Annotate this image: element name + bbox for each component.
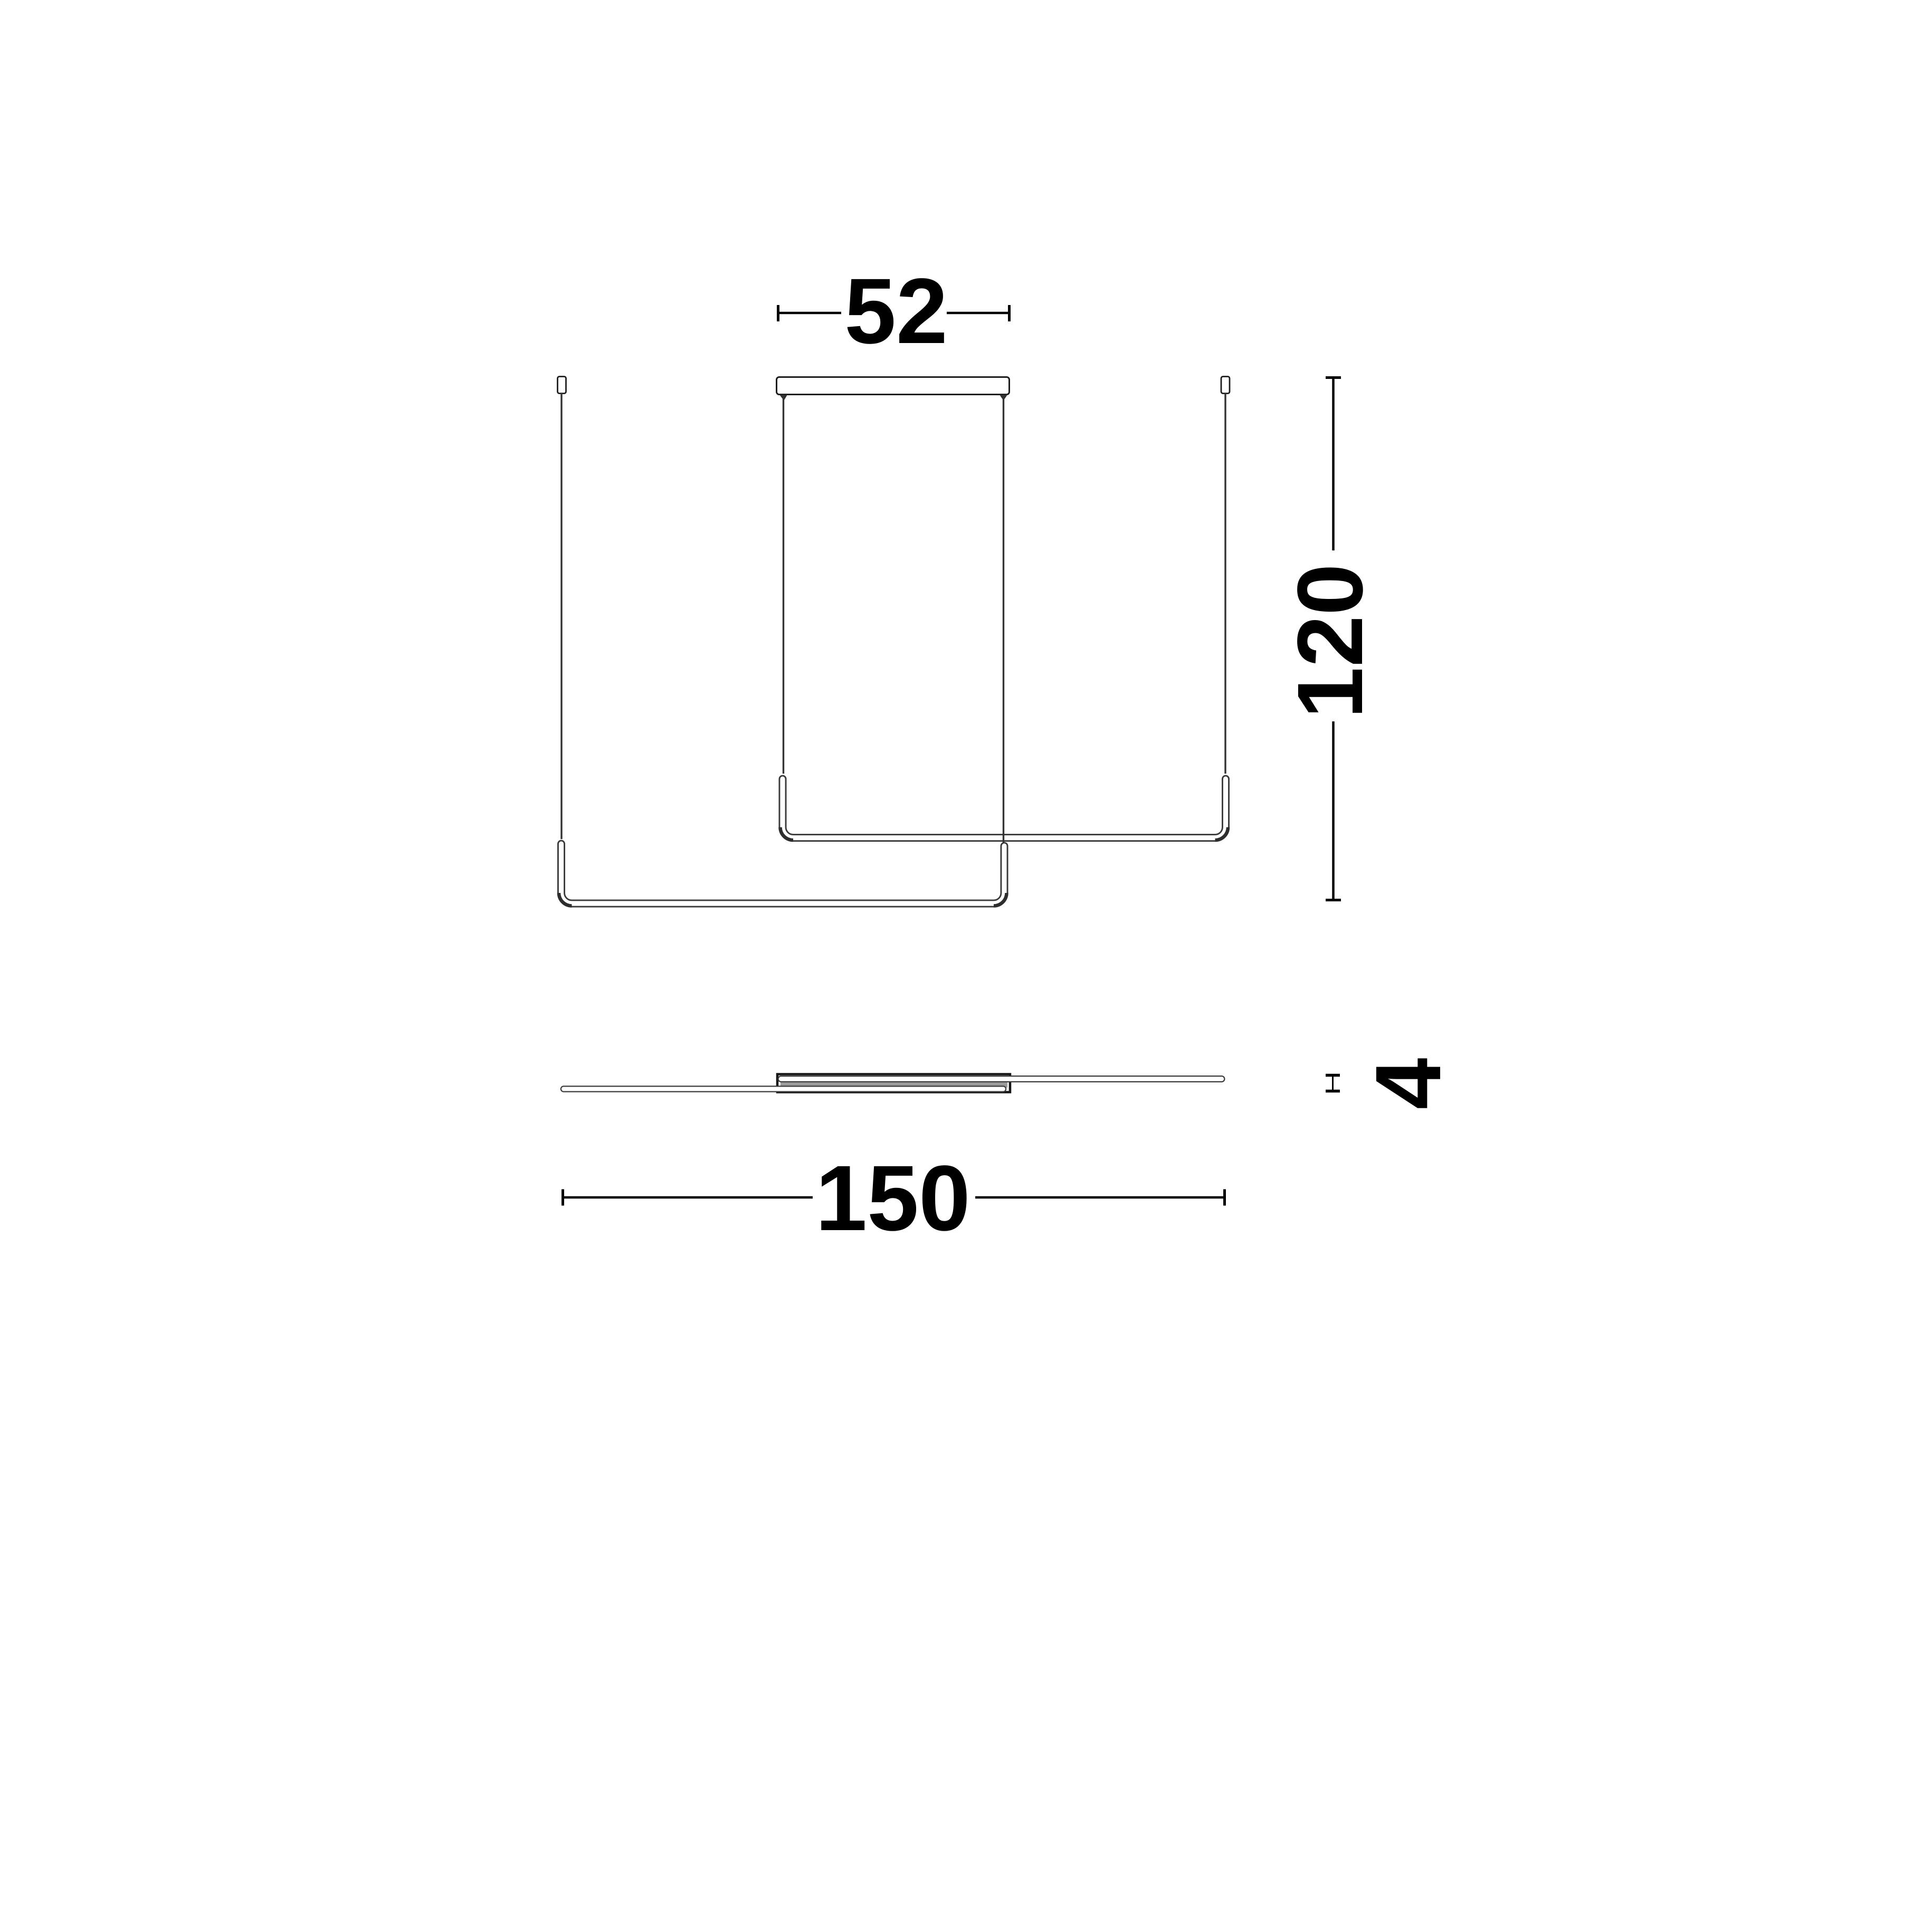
svg-text:52: 52 bbox=[844, 260, 948, 363]
svg-text:120: 120 bbox=[1279, 564, 1382, 719]
svg-text:4: 4 bbox=[1357, 1058, 1460, 1110]
svg-text:150: 150 bbox=[815, 1147, 970, 1250]
